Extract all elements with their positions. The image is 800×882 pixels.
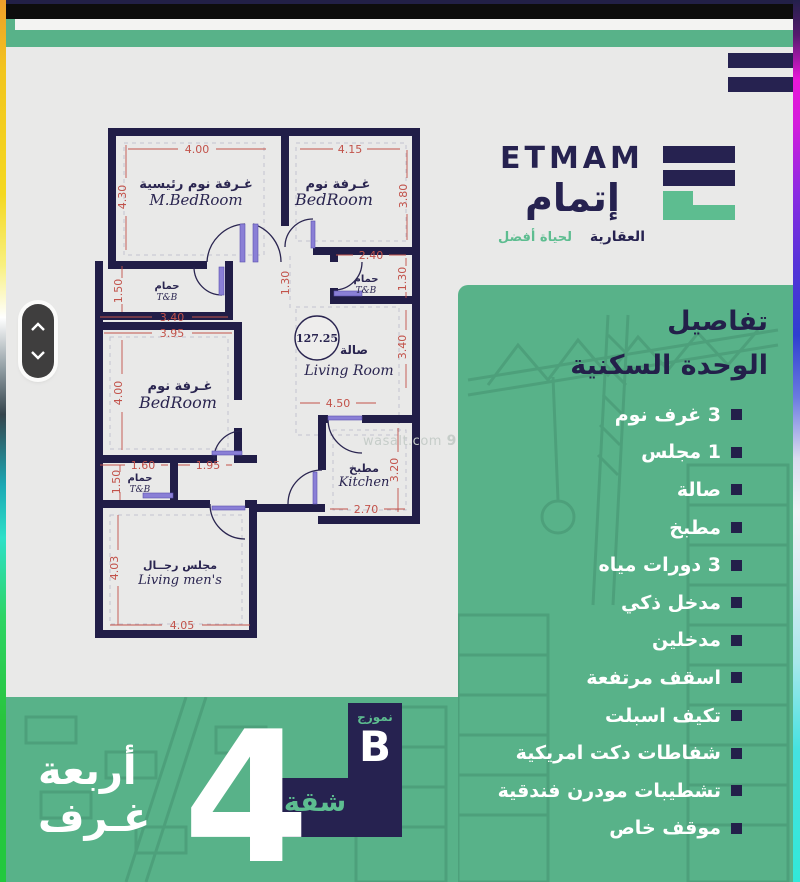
label-bath3-en: T&B xyxy=(130,485,151,495)
dim-bed2-width: 4.15 xyxy=(338,143,363,156)
bullet-square-icon xyxy=(731,748,742,759)
rooms-count-number: 4 xyxy=(183,707,310,882)
dim-bath3-width: 1.60 xyxy=(131,459,156,472)
list-item: تشطيبات مودرن فندقية xyxy=(462,772,742,810)
model-letter: B xyxy=(348,722,402,771)
list-item: 1 مجلس xyxy=(462,434,742,472)
list-item: اسقف مرتفعة xyxy=(462,659,742,697)
list-item: تكيف اسبلت xyxy=(462,697,742,735)
label-bath2-ar: حمام xyxy=(354,274,379,285)
label-majlis-en: Living men's xyxy=(137,573,222,588)
dim-mbed-width: 4.00 xyxy=(185,143,210,156)
dim-bath3-height: 1.50 xyxy=(110,470,123,495)
list-item: شفاطات دكت امريكية xyxy=(462,734,742,772)
label-kitchen-ar: مطبخ xyxy=(349,462,379,475)
bullet-square-icon xyxy=(731,447,742,458)
bullet-square-icon xyxy=(731,522,742,533)
list-item: 3 غرف نوم xyxy=(462,396,742,434)
right-rainbow-strip xyxy=(793,0,800,882)
wasalt-text: wasalt.com xyxy=(363,434,442,449)
label-bath1-ar: حمام xyxy=(155,281,180,292)
feature-text: مدخل ذكي xyxy=(621,592,721,614)
label-bath3-ar: حمام xyxy=(128,473,153,484)
label-living-en: Living Room xyxy=(303,363,393,379)
label-bed3-ar: غـرفة نوم xyxy=(148,379,213,394)
left-rainbow-strip xyxy=(0,0,6,882)
dim-bath2-height: 1.30 xyxy=(396,267,409,292)
rooms-text-line1: أربعة xyxy=(38,748,198,795)
label-bath2-en: T&B xyxy=(356,286,377,296)
feature-list: 3 غرف نوم 1 مجلس صالة مطبخ 3 دورات مياه … xyxy=(462,396,742,847)
feature-text: مطبخ xyxy=(669,517,721,539)
list-item: 3 دورات مياه xyxy=(462,546,742,584)
list-item: مطبخ xyxy=(462,509,742,547)
label-bed3-en: BedRoom xyxy=(138,393,217,412)
dim-bed3-width: 3.95 xyxy=(160,327,185,340)
bullet-square-icon xyxy=(731,597,742,608)
bullet-square-icon xyxy=(731,672,742,683)
list-item: صالة xyxy=(462,471,742,509)
bullet-square-icon xyxy=(731,823,742,834)
room-labels-layer: غـرفة نوم رئيسية M.BedRoom غـرفة نوم Bed… xyxy=(128,177,394,588)
dim-mbed-height: 4.30 xyxy=(116,185,129,210)
feature-text: اسقف مرتفعة xyxy=(586,667,721,689)
feature-text: موقف خاص xyxy=(609,817,721,839)
dim-bed2-height: 3.80 xyxy=(397,184,410,209)
feature-text: 3 غرف نوم xyxy=(615,404,721,426)
wasalt-watermark: wasalt.com 9 xyxy=(363,433,457,449)
bullet-square-icon xyxy=(731,635,742,646)
dim-bath1-width: 3.40 xyxy=(160,311,185,324)
feature-text: شفاطات دكت امريكية xyxy=(516,742,721,764)
list-item: مدخل ذكي xyxy=(462,584,742,622)
bullet-square-icon xyxy=(731,560,742,571)
label-mbed-en: M.BedRoom xyxy=(148,191,242,209)
dim-living-width: 4.50 xyxy=(326,397,351,410)
dim-bath2-width: 2.40 xyxy=(359,249,384,262)
rooms-text-line2: غـرف xyxy=(38,795,198,842)
label-kitchen-en: Kitchen xyxy=(338,475,390,490)
feature-text: مدخلين xyxy=(652,629,721,651)
feature-text: تكيف اسبلت xyxy=(605,705,721,727)
bullet-square-icon xyxy=(731,785,742,796)
dim-kitchen-height: 3.20 xyxy=(388,458,401,483)
feature-text: صالة xyxy=(677,479,721,501)
label-living-ar: صالة xyxy=(340,343,368,357)
poster-page: ETMAM إتمام العقارية لحياة أفضل xyxy=(0,0,800,882)
dim-bath1-height: 1.50 xyxy=(112,279,125,304)
panel-title-line2: الوحدة السكنية xyxy=(468,344,768,388)
panel-title-line1: تفاصيل xyxy=(468,300,768,344)
label-bed2-en: BedRoom xyxy=(294,190,373,209)
dim-majlis-width: 4.05 xyxy=(170,619,195,632)
bullet-square-icon xyxy=(731,710,742,721)
feature-text: 1 مجلس xyxy=(641,441,721,463)
dim-bed3-height: 4.00 xyxy=(112,381,125,406)
wasalt-logo-glyph: 9 xyxy=(447,433,457,449)
list-item: مدخلين xyxy=(462,622,742,660)
feature-text: 3 دورات مياه xyxy=(599,554,721,576)
label-bath1-en: T&B xyxy=(157,293,178,303)
label-mbed-ar: غـرفة نوم رئيسية xyxy=(139,177,253,192)
dim-majlis-height: 4.03 xyxy=(108,556,121,581)
panel-title: تفاصيل الوحدة السكنية xyxy=(468,300,768,388)
label-majlis-ar: مجلس رجــال xyxy=(143,559,217,572)
feature-text: تشطيبات مودرن فندقية xyxy=(498,780,721,802)
dim-hall-width: 1.30 xyxy=(279,271,292,296)
area-value: 127.25 xyxy=(296,332,338,345)
bullet-square-icon xyxy=(731,484,742,495)
rooms-count-text: أربعة غـرف xyxy=(38,748,198,842)
dim-kitchen-width: 2.70 xyxy=(354,503,379,516)
dim-living-height: 3.40 xyxy=(396,335,409,360)
bullet-square-icon xyxy=(731,409,742,420)
list-item: موقف خاص xyxy=(462,810,742,848)
dim-lobby-width: 1.95 xyxy=(196,459,221,472)
